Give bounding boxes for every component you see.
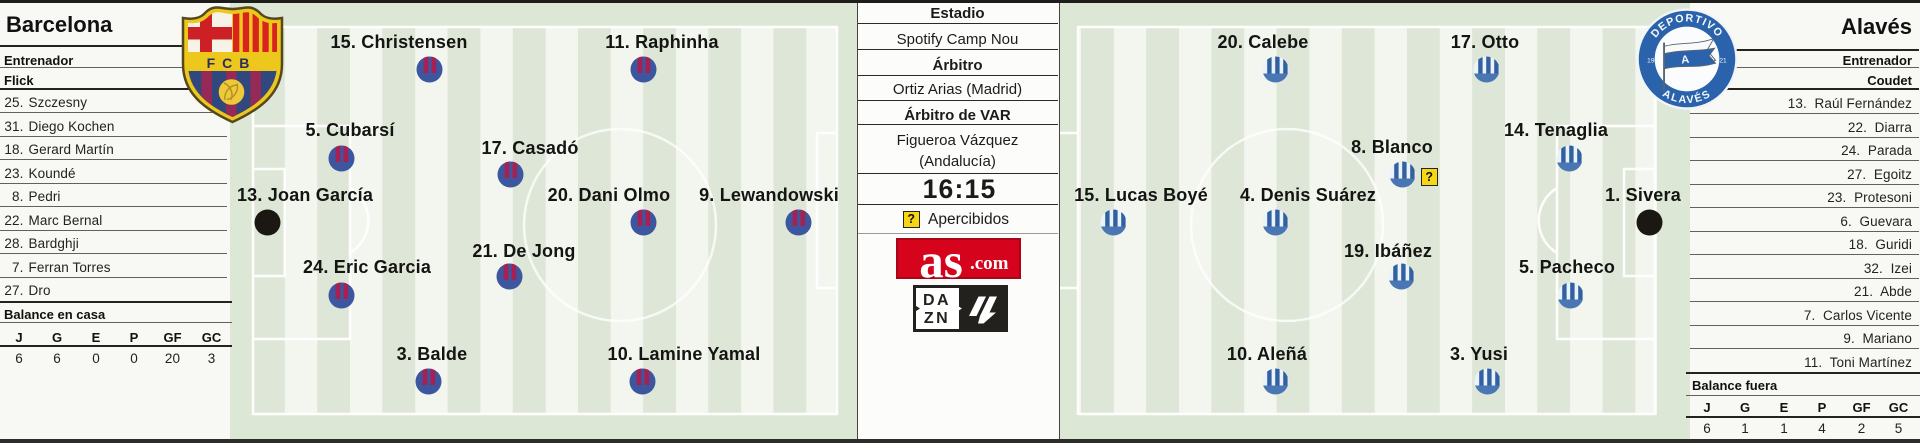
svg-text:DA: DA [923,292,951,309]
svg-text:ZN: ZN [924,310,950,327]
svg-text:FCB: FCB [207,55,257,71]
svg-text:19: 19 [1647,57,1655,64]
svg-text:21: 21 [1719,57,1727,64]
svg-text:A: A [1681,54,1690,67]
